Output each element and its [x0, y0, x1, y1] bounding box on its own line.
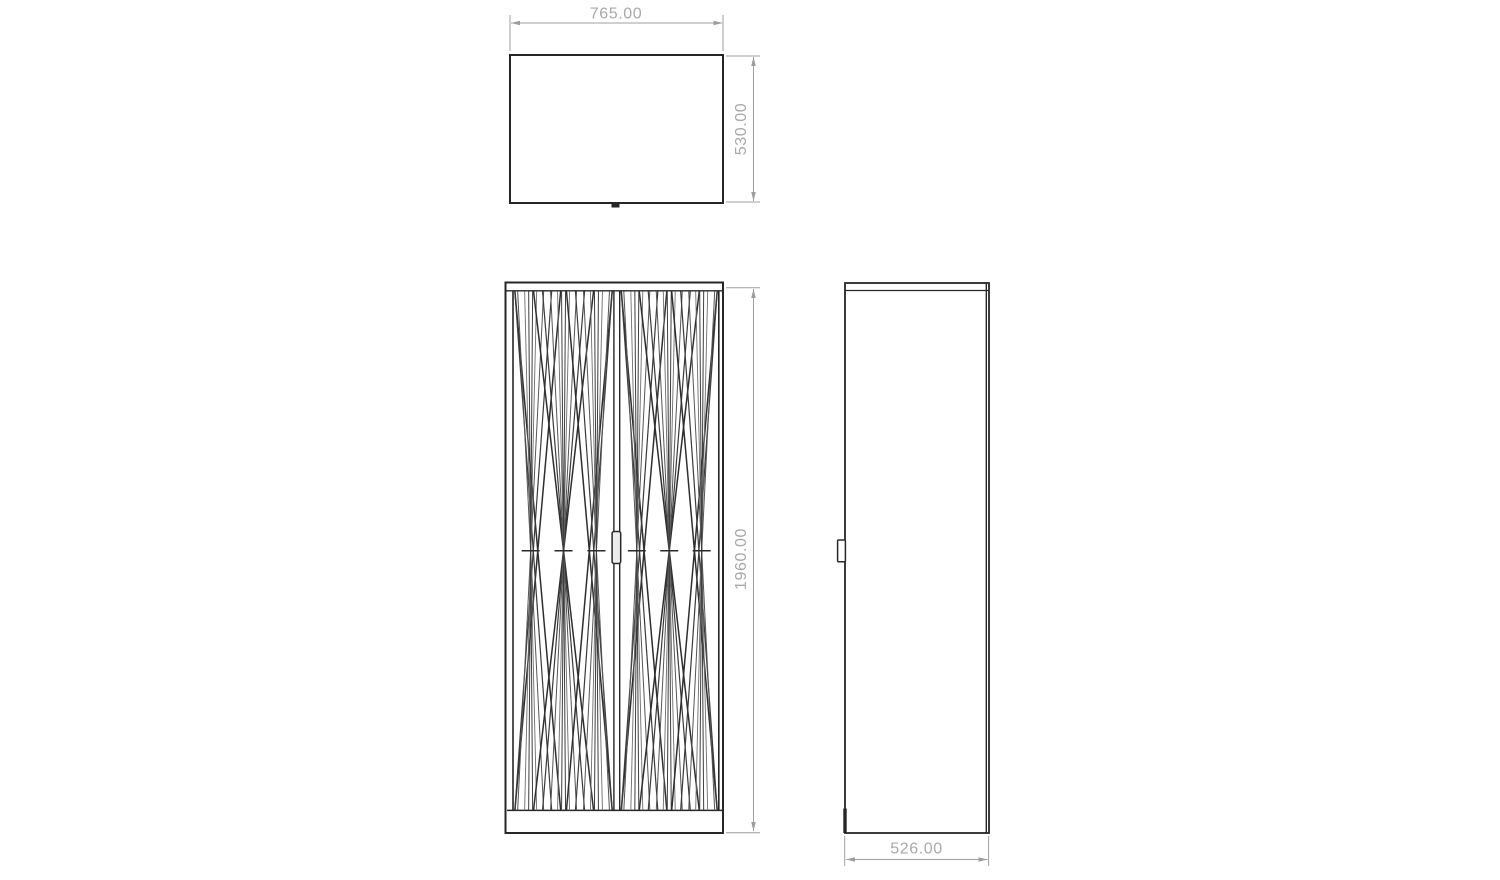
side-view — [838, 283, 989, 833]
dimension-arrow — [846, 857, 855, 862]
dimension-arrow — [511, 21, 520, 26]
dimension-arrow — [751, 822, 756, 831]
dimension-arrow — [751, 57, 756, 66]
side-view-outline — [845, 283, 989, 833]
dimension-label-side-depth: 526.00 — [890, 841, 943, 858]
dimension-arrow — [714, 21, 723, 26]
dimension-label-top-width: 765.00 — [590, 6, 643, 23]
front-view — [506, 283, 724, 834]
dimension-label-front-height: 1960.00 — [733, 528, 750, 590]
technical-drawing-canvas: 765.00 530.00 1960.00 — [0, 0, 1500, 880]
dimension-arrow — [979, 857, 988, 862]
dimension-arrow — [751, 192, 756, 201]
side-plinth-edge — [843, 809, 846, 834]
door-handle-side-profile — [838, 540, 846, 562]
dimension-label-top-depth: 530.00 — [733, 103, 750, 156]
dimension-arrow — [751, 289, 756, 298]
top-view — [510, 55, 723, 208]
door-handle — [612, 532, 621, 564]
top-view-handle-mark — [612, 202, 620, 208]
top-view-outline — [510, 55, 723, 203]
drawing-sheet: 765.00 530.00 1960.00 — [0, 0, 1500, 880]
